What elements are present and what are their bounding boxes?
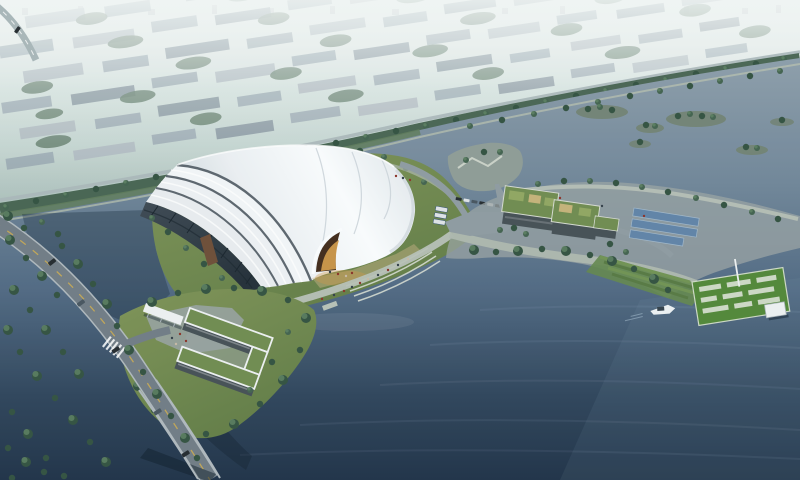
rendering-canvas <box>0 0 800 480</box>
atmosphere-tint <box>0 0 800 480</box>
architectural-rendering <box>0 0 800 480</box>
